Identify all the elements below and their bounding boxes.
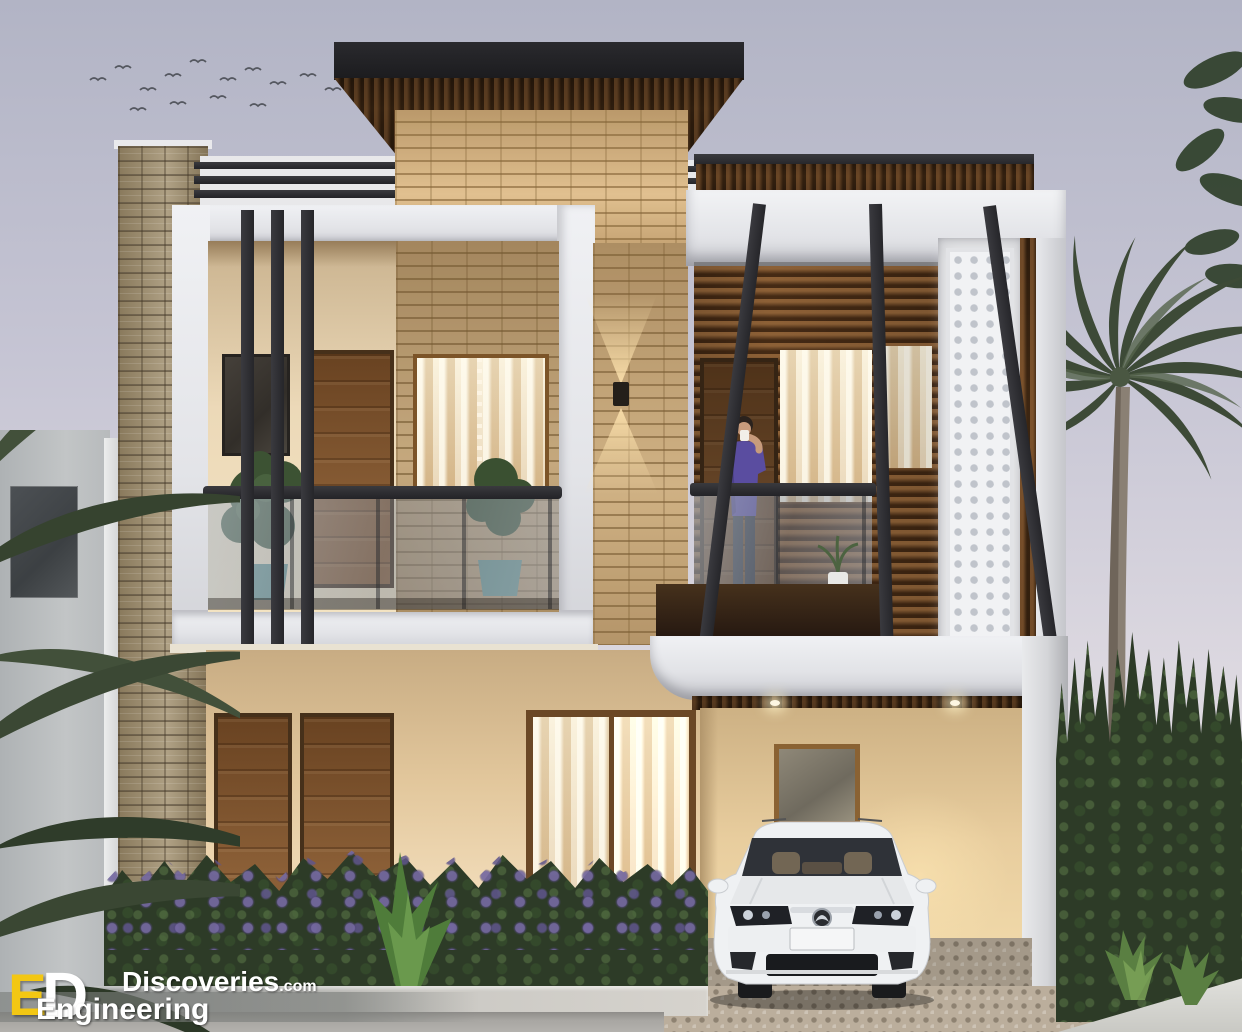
foreground-palm-fronds (0, 430, 240, 1032)
birds-flock (70, 40, 350, 140)
left-balcony-handrail (203, 486, 562, 499)
vertical-slat (241, 210, 254, 648)
left-balcony-floor-shadow (208, 598, 559, 610)
vertical-slat (301, 210, 314, 648)
agave-plants-right (1085, 900, 1235, 1010)
left-balcony-glass-railing (208, 499, 559, 609)
balcony-frame-top (172, 205, 595, 243)
wall-lamp-fixture (613, 382, 629, 406)
right-balcony-curtain (780, 350, 872, 502)
pergola-beam (194, 162, 406, 169)
pergola-beam (194, 190, 406, 198)
pergola-beam (194, 176, 406, 184)
roof-fascia-black (334, 42, 744, 80)
carport-canopy-slab (650, 636, 1066, 700)
watermark-word-engineering: Engineering (36, 993, 209, 1027)
balcony-frame-right (557, 205, 595, 648)
architectural-render-scene: E D Discoveries.com Engineering (0, 0, 1242, 1032)
watermark-suffix-com: .com (279, 978, 316, 995)
carport-ceiling-light (770, 700, 780, 706)
white-sedan-car (702, 812, 942, 1012)
right-balcony-curtain-2 (882, 346, 932, 468)
carport-ceiling-light (950, 700, 960, 706)
agave-plant-center (330, 822, 480, 1007)
right-balcony-slab (656, 584, 882, 640)
vertical-slat (271, 210, 284, 648)
